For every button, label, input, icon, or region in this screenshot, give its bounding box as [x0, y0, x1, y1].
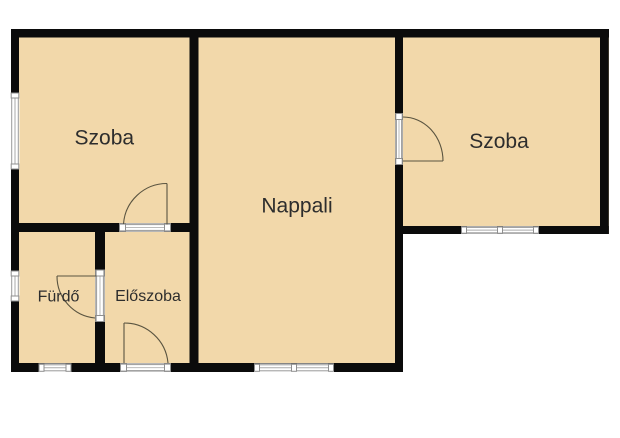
svg-text:Szoba: Szoba	[469, 130, 529, 153]
svg-text:Szoba: Szoba	[75, 127, 135, 150]
svg-text:Fürdő: Fürdő	[38, 288, 80, 305]
svg-text:Előszoba: Előszoba	[115, 288, 181, 305]
svg-text:Nappali: Nappali	[261, 195, 332, 218]
